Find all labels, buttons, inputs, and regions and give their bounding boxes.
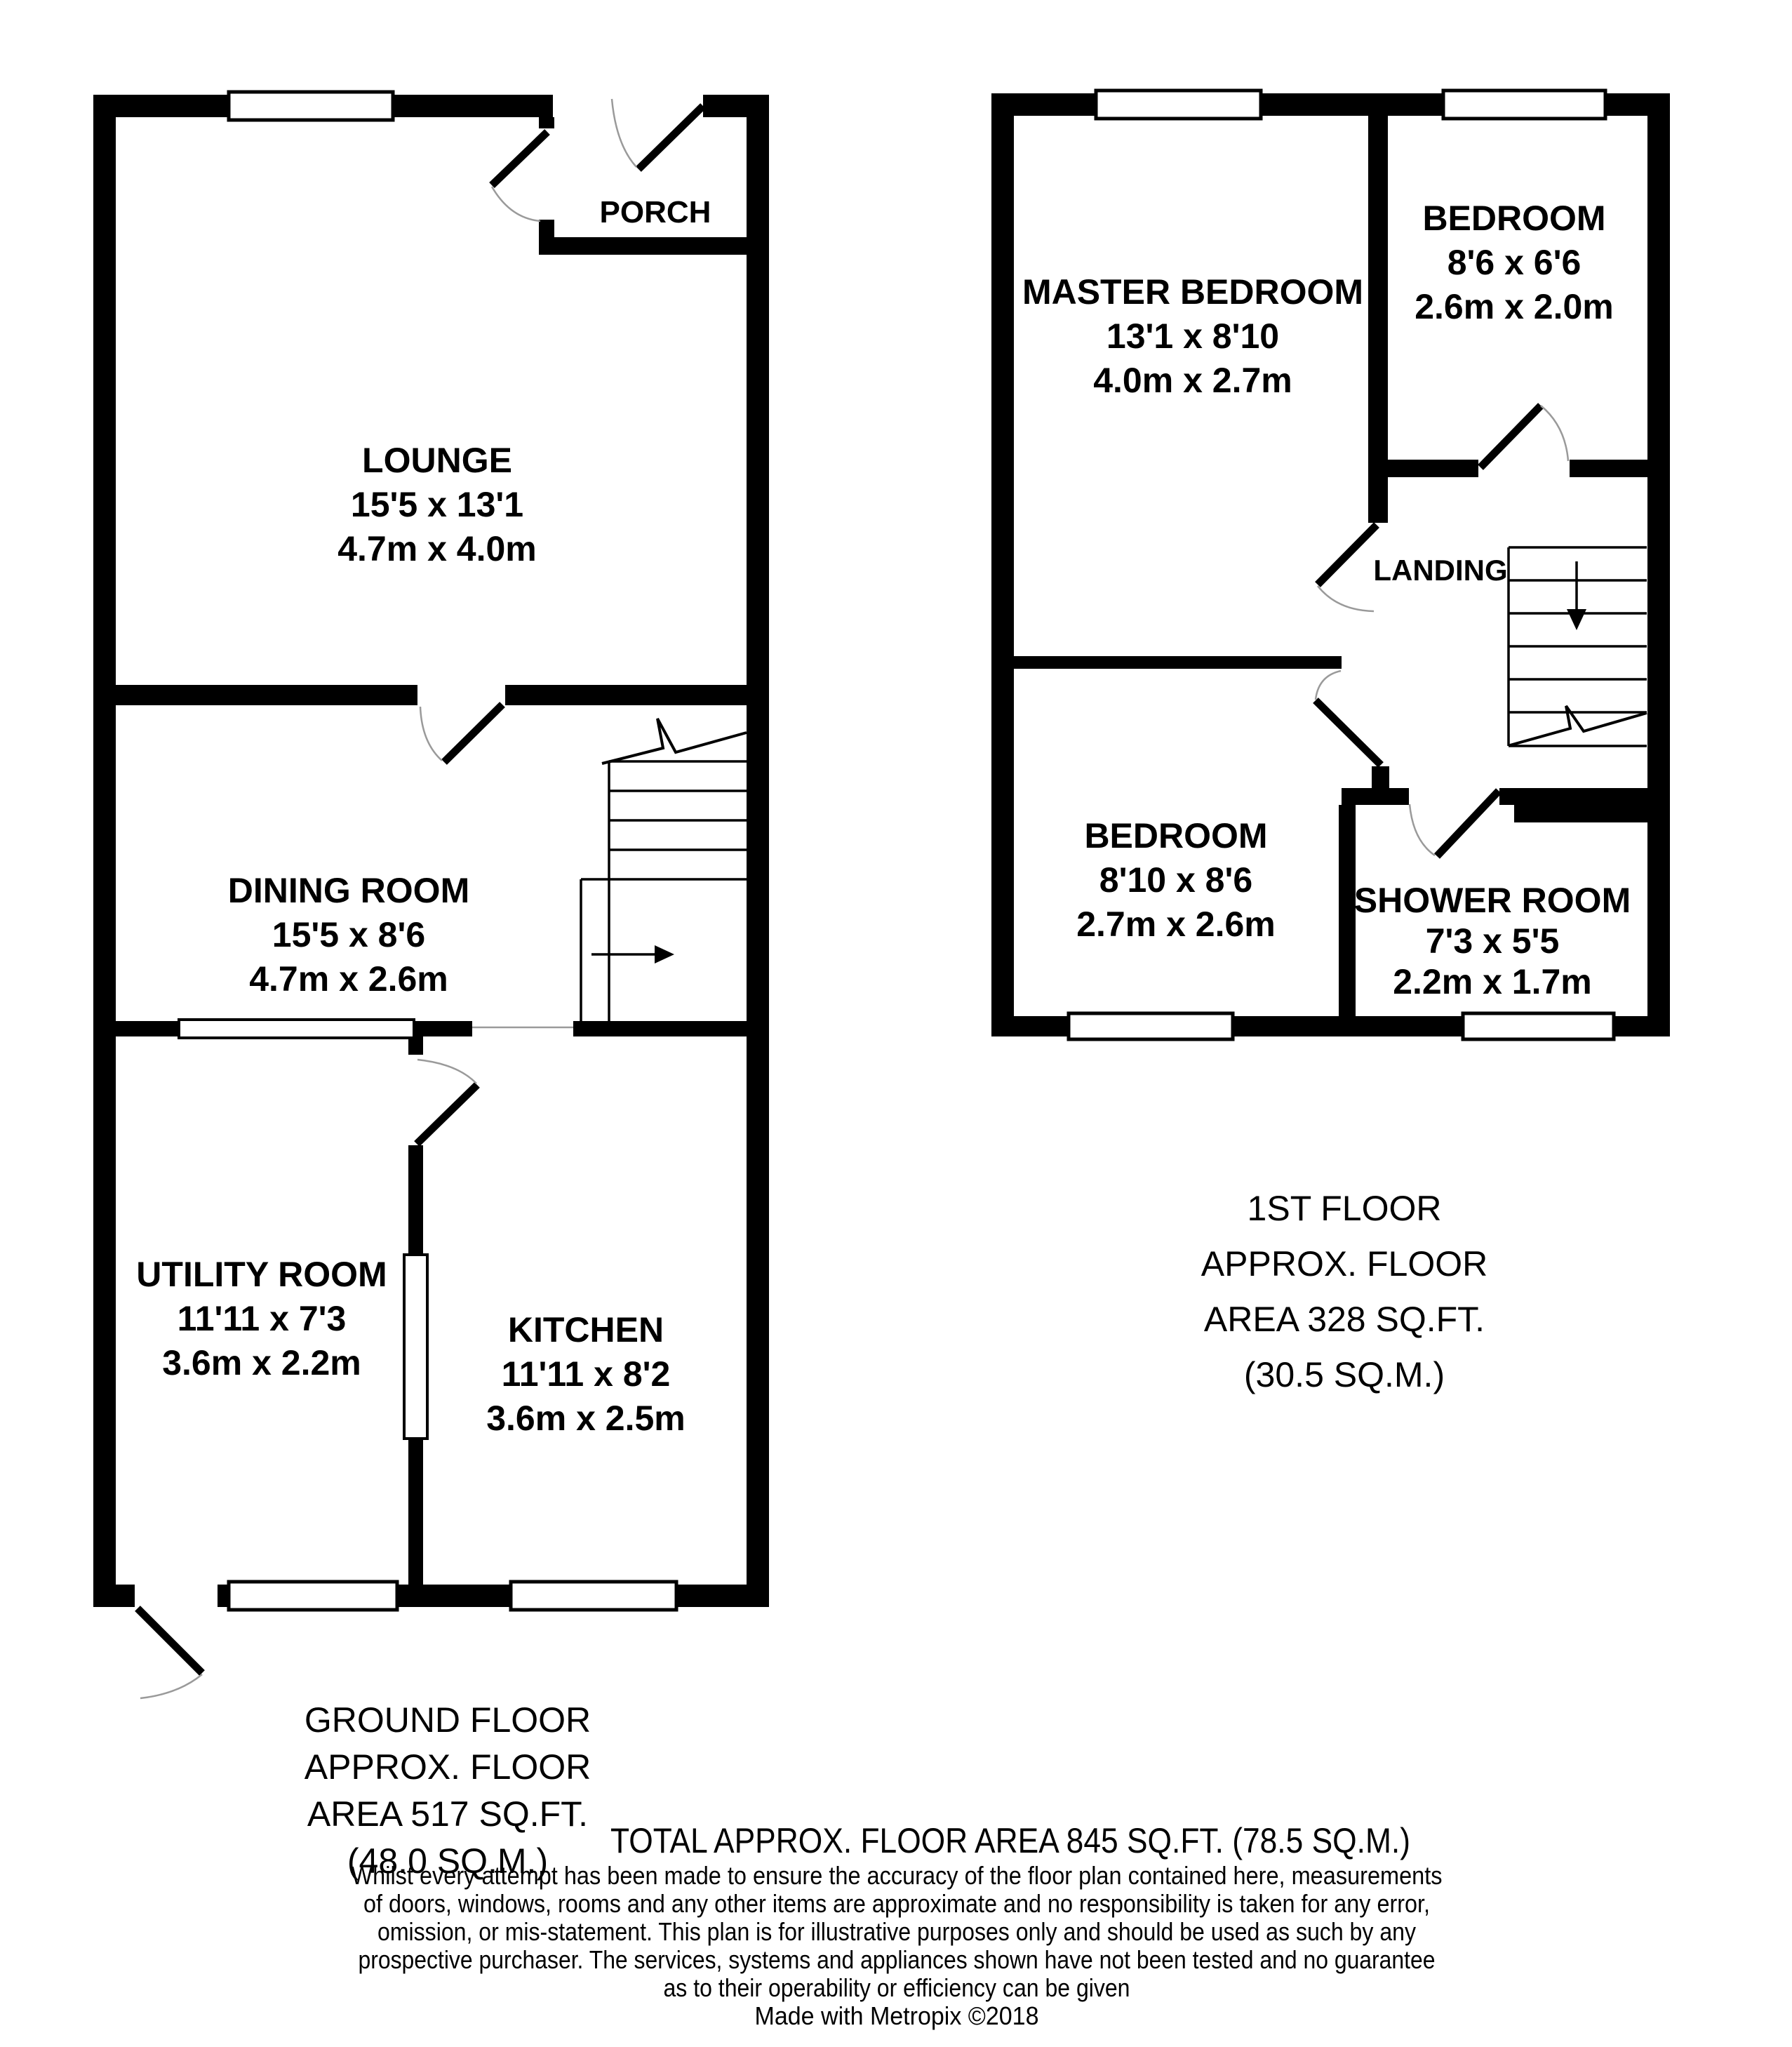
door-leaf xyxy=(1480,406,1541,467)
room-dims-ft: 11'11 x 8'2 xyxy=(502,1354,671,1394)
room-label-landing: LANDING xyxy=(1373,554,1507,587)
disclaimer-line: as to their operability or efficiency ca… xyxy=(664,1973,1130,2002)
room-label-bedroom2: BEDROOM 8'6 x 6'6 2.6m x 2.0m xyxy=(1415,199,1614,326)
room-label-shower: SHOWER ROOM 7'3 x 5'5 2.2m x 1.7m xyxy=(1354,881,1631,1001)
disclaimer-line: Whilst every attempt has been made to en… xyxy=(352,1861,1443,1890)
wall xyxy=(1499,788,1647,805)
wall xyxy=(93,1021,179,1036)
door-utility-exterior xyxy=(138,1608,202,1698)
room-label-master: MASTER BEDROOM 13'1 x 8'10 4.0m x 2.7m xyxy=(1022,272,1363,400)
room-dims-ft: 7'3 x 5'5 xyxy=(1426,921,1560,961)
wall-stub xyxy=(1372,766,1389,788)
room-dims-m: 2.6m x 2.0m xyxy=(1415,287,1614,326)
arrow-head xyxy=(655,945,674,964)
credit-text: Made with Metropix ©2018 xyxy=(755,2001,1039,2030)
caption-line: GROUND FLOOR xyxy=(305,1700,591,1740)
room-dims-m: 2.2m x 1.7m xyxy=(1393,962,1592,1001)
room-label-bedroom3: BEDROOM 8'10 x 8'6 2.7m x 2.6m xyxy=(1076,816,1276,944)
wall-divider xyxy=(408,1145,423,1255)
room-name: MASTER BEDROOM xyxy=(1022,272,1363,312)
room-label-porch: PORCH xyxy=(600,195,711,229)
total-area-text: TOTAL APPROX. FLOOR AREA 845 SQ.FT. (78.… xyxy=(610,1821,1410,1860)
room-dims-m: 2.7m x 2.6m xyxy=(1076,905,1276,944)
window-dining-utility xyxy=(179,1020,414,1038)
window-master xyxy=(1096,91,1261,119)
caption-line: (30.5 SQ.M.) xyxy=(1244,1355,1445,1394)
door-leaf xyxy=(492,132,547,185)
room-dims-m: 3.6m x 2.5m xyxy=(486,1399,686,1438)
stairs-treads xyxy=(581,761,747,1021)
room-label-lounge: LOUNGE 15'5 x 13'1 4.7m x 4.0m xyxy=(337,441,537,568)
stairs-ground xyxy=(581,719,747,1021)
room-label-utility: UTILITY ROOM 11'11 x 7'3 3.6m x 2.2m xyxy=(136,1255,387,1382)
door-leaf xyxy=(138,1608,202,1673)
wall xyxy=(1514,805,1647,822)
window-kitchen xyxy=(511,1582,676,1610)
caption-line: APPROX. FLOOR xyxy=(1201,1244,1487,1283)
room-dims-m: 4.7m x 4.0m xyxy=(337,529,537,568)
wall xyxy=(1388,460,1478,477)
ground-floor-area-caption: GROUND FLOOR APPROX. FLOOR AREA 517 SQ.F… xyxy=(305,1700,591,1881)
door-swing-arc xyxy=(1318,586,1374,611)
wall xyxy=(505,685,748,705)
stair-break-line xyxy=(602,719,747,764)
disclaimer-line: of doors, windows, rooms and any other i… xyxy=(363,1889,1430,1918)
wall-divider xyxy=(1368,116,1388,523)
stairs-down-arrow xyxy=(1567,561,1586,630)
room-dims-ft: 15'5 x 8'6 xyxy=(272,915,425,954)
wall xyxy=(573,1021,748,1036)
wall xyxy=(1570,460,1647,477)
door-swing-arc xyxy=(417,1060,476,1083)
stairs-up-arrow xyxy=(591,945,674,964)
stairs-first xyxy=(1509,547,1647,746)
door-bedroom3 xyxy=(1316,671,1381,765)
door-master xyxy=(1318,525,1377,611)
door-shower xyxy=(1410,791,1499,856)
room-label-kitchen: KITCHEN 11'11 x 8'2 3.6m x 2.5m xyxy=(486,1310,686,1438)
door-front xyxy=(612,99,703,169)
room-name: BEDROOM xyxy=(1084,816,1267,855)
wall-porch-stub xyxy=(539,117,554,128)
wall-divider xyxy=(1339,805,1356,1016)
window-bedroom2 xyxy=(1443,91,1605,119)
caption-line: APPROX. FLOOR xyxy=(305,1747,591,1787)
room-label-dining: DINING ROOM 15'5 x 8'6 4.7m x 2.6m xyxy=(228,871,469,999)
door-leaf xyxy=(638,106,703,169)
window-utility xyxy=(229,1582,397,1610)
floorplan-svg: LOUNGE 15'5 x 13'1 4.7m x 4.0m PORCH DIN… xyxy=(0,0,1792,2047)
room-name: PORCH xyxy=(600,195,711,229)
window-lounge xyxy=(229,92,393,120)
disclaimer-line: prospective purchaser. The services, sys… xyxy=(359,1945,1436,1974)
ground-floor-plan: LOUNGE 15'5 x 13'1 4.7m x 4.0m PORCH DIN… xyxy=(93,92,769,1881)
first-floor-plan: MASTER BEDROOM 13'1 x 8'10 4.0m x 2.7m B… xyxy=(991,91,1670,1394)
door-lounge-dining xyxy=(420,705,502,762)
room-dims-ft: 15'5 x 13'1 xyxy=(351,485,523,524)
door-utility-kitchen xyxy=(417,1060,477,1144)
room-dims-m: 4.0m x 2.7m xyxy=(1093,361,1292,400)
door-swing-arc xyxy=(1316,671,1341,700)
wall xyxy=(414,1021,472,1036)
caption-line: AREA 517 SQ.FT. xyxy=(307,1794,588,1834)
door-bedroom2 xyxy=(1480,406,1568,467)
room-dims-ft: 8'6 x 6'6 xyxy=(1447,243,1582,282)
wall xyxy=(93,685,417,705)
wall xyxy=(1014,656,1342,669)
window-shower xyxy=(1463,1013,1614,1039)
room-name: LOUNGE xyxy=(362,441,512,480)
wall xyxy=(1647,93,1670,1036)
wall xyxy=(93,95,116,1607)
door-leaf xyxy=(444,705,502,762)
door-porch-lounge xyxy=(492,132,547,221)
wall-divider xyxy=(408,1439,423,1585)
door-swing-arc xyxy=(1541,406,1568,461)
room-dims-m: 4.7m x 2.6m xyxy=(249,959,448,999)
floorplan-page: LOUNGE 15'5 x 13'1 4.7m x 4.0m PORCH DIN… xyxy=(0,0,1792,2047)
caption-line: AREA 328 SQ.FT. xyxy=(1204,1300,1485,1339)
door-swing-arc xyxy=(492,187,540,221)
arrow-head xyxy=(1567,609,1586,630)
wall-porch-stub xyxy=(539,220,554,237)
door-swing-arc xyxy=(140,1674,202,1698)
window-utility-kitchen xyxy=(404,1255,427,1439)
room-name: DINING ROOM xyxy=(228,871,469,910)
wall xyxy=(747,95,769,1607)
room-name: LANDING xyxy=(1373,554,1507,587)
room-dims-ft: 13'1 x 8'10 xyxy=(1106,316,1279,356)
door-swing-arc xyxy=(420,707,442,761)
door-leaf xyxy=(1316,700,1381,765)
first-floor-area-caption: 1ST FLOOR APPROX. FLOOR AREA 328 SQ.FT. … xyxy=(1201,1189,1487,1394)
room-name: SHOWER ROOM xyxy=(1354,881,1631,920)
room-name: BEDROOM xyxy=(1422,199,1605,238)
room-dims-ft: 11'11 x 7'3 xyxy=(178,1299,347,1338)
room-dims-m: 3.6m x 2.2m xyxy=(162,1343,361,1382)
room-name: KITCHEN xyxy=(508,1310,664,1349)
door-leaf xyxy=(1318,525,1377,585)
wall-porch-bottom xyxy=(539,237,769,255)
door-swing-arc xyxy=(612,99,636,167)
door-leaf xyxy=(1437,791,1499,856)
window-bedroom3 xyxy=(1069,1013,1233,1039)
caption-line: 1ST FLOOR xyxy=(1248,1189,1442,1228)
disclaimer-line: omission, or mis-statement. This plan is… xyxy=(377,1917,1416,1946)
wall xyxy=(991,93,1014,1036)
wall xyxy=(1342,788,1409,805)
door-leaf xyxy=(417,1085,477,1144)
room-name: UTILITY ROOM xyxy=(136,1255,387,1294)
wall xyxy=(93,1585,135,1607)
door-swing-arc xyxy=(1410,804,1435,855)
room-dims-ft: 8'10 x 8'6 xyxy=(1099,860,1252,900)
